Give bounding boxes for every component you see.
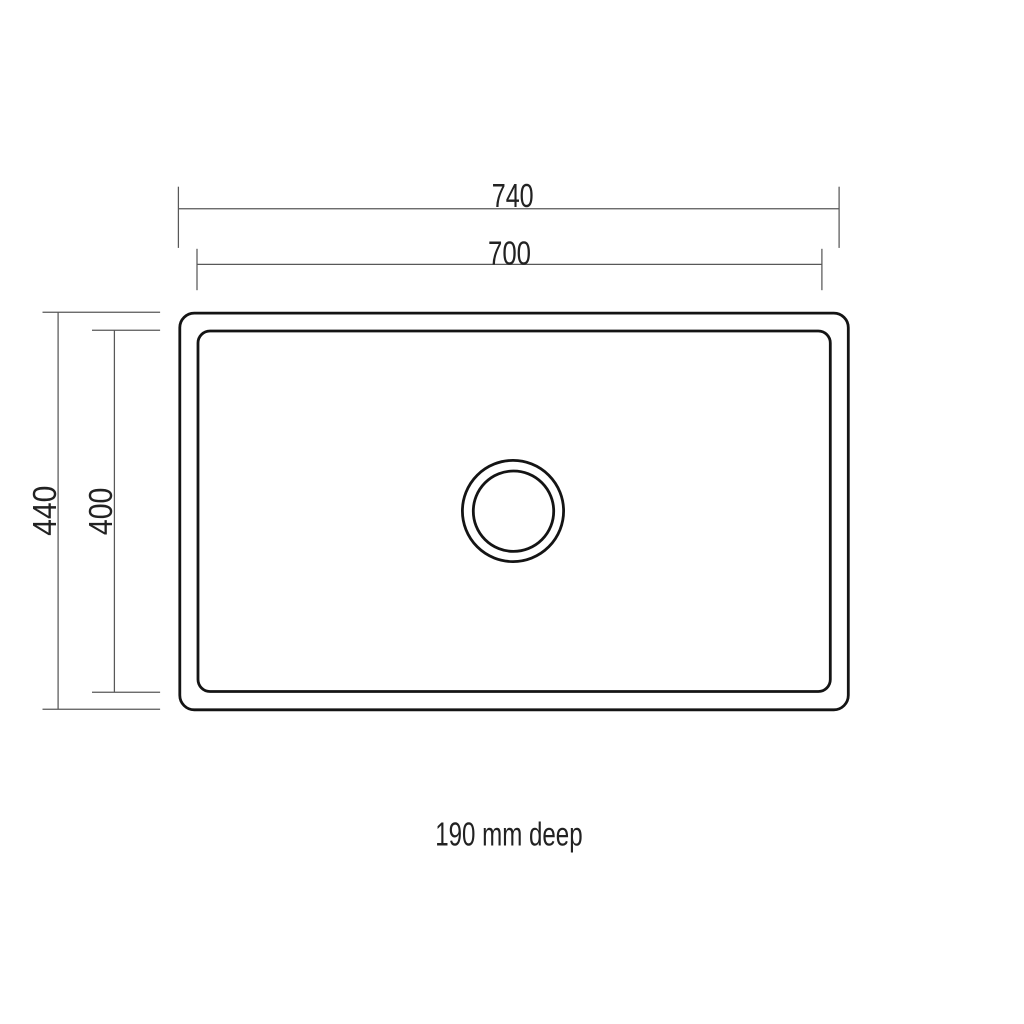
svg-text:700: 700 (488, 235, 531, 272)
svg-text:400: 400 (82, 488, 120, 535)
svg-text:190 mm deep: 190 mm deep (435, 817, 582, 854)
svg-text:440: 440 (25, 486, 63, 536)
svg-text:740: 740 (492, 178, 534, 215)
